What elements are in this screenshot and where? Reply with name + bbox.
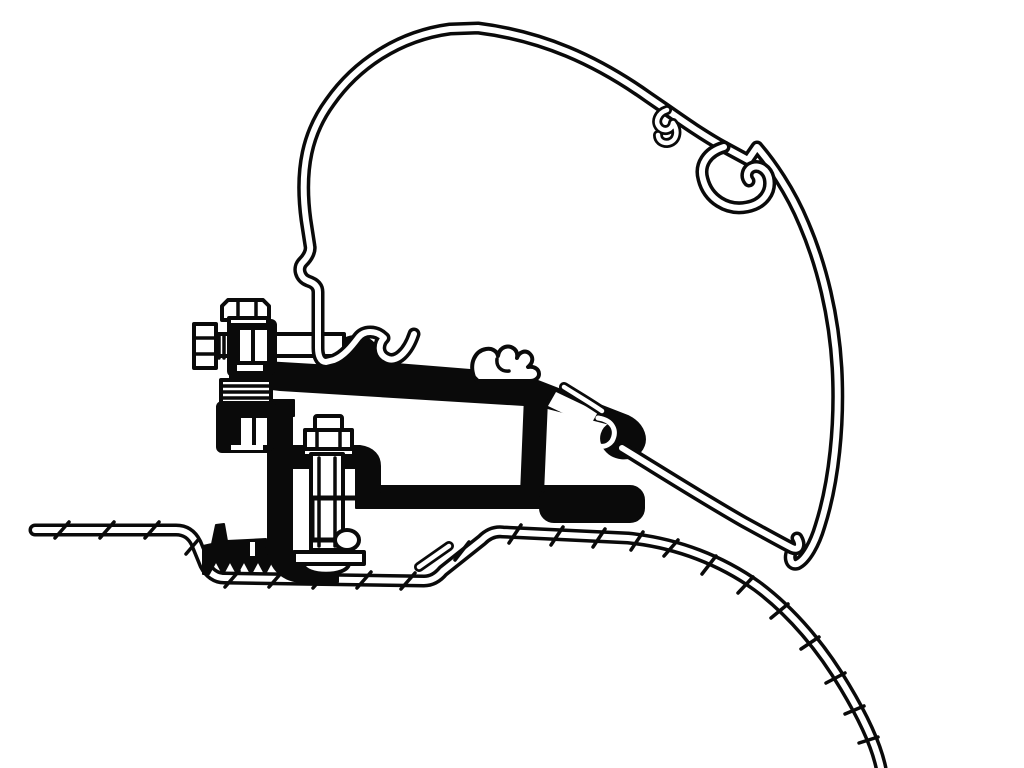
upper-clamp-slit <box>237 365 263 371</box>
mounting-foot-assembly <box>294 416 364 574</box>
technical-diagram <box>0 0 1024 768</box>
foot-dome <box>303 564 349 574</box>
base-web <box>356 486 562 508</box>
adapter-rail-crown-clip <box>472 346 539 381</box>
base-rail-end <box>540 486 644 522</box>
adapter-bracket <box>230 336 645 582</box>
upper-clamp-window <box>240 330 251 361</box>
rubber-pad-slit <box>250 542 255 556</box>
support-strut <box>521 396 547 494</box>
upper-clamp-window <box>255 330 267 361</box>
lower-clamp-window <box>241 418 252 445</box>
roof-sheet-line <box>35 530 881 768</box>
lower-clamp-slit <box>231 445 263 450</box>
top-bolt-washer <box>229 318 268 325</box>
inner-c-bracket-bulb <box>335 530 359 550</box>
horizontal-bolt-head <box>194 324 216 368</box>
lower-clamp-window <box>256 418 267 445</box>
van-roof-sheet <box>35 522 881 768</box>
diagram-stage <box>0 0 1024 768</box>
